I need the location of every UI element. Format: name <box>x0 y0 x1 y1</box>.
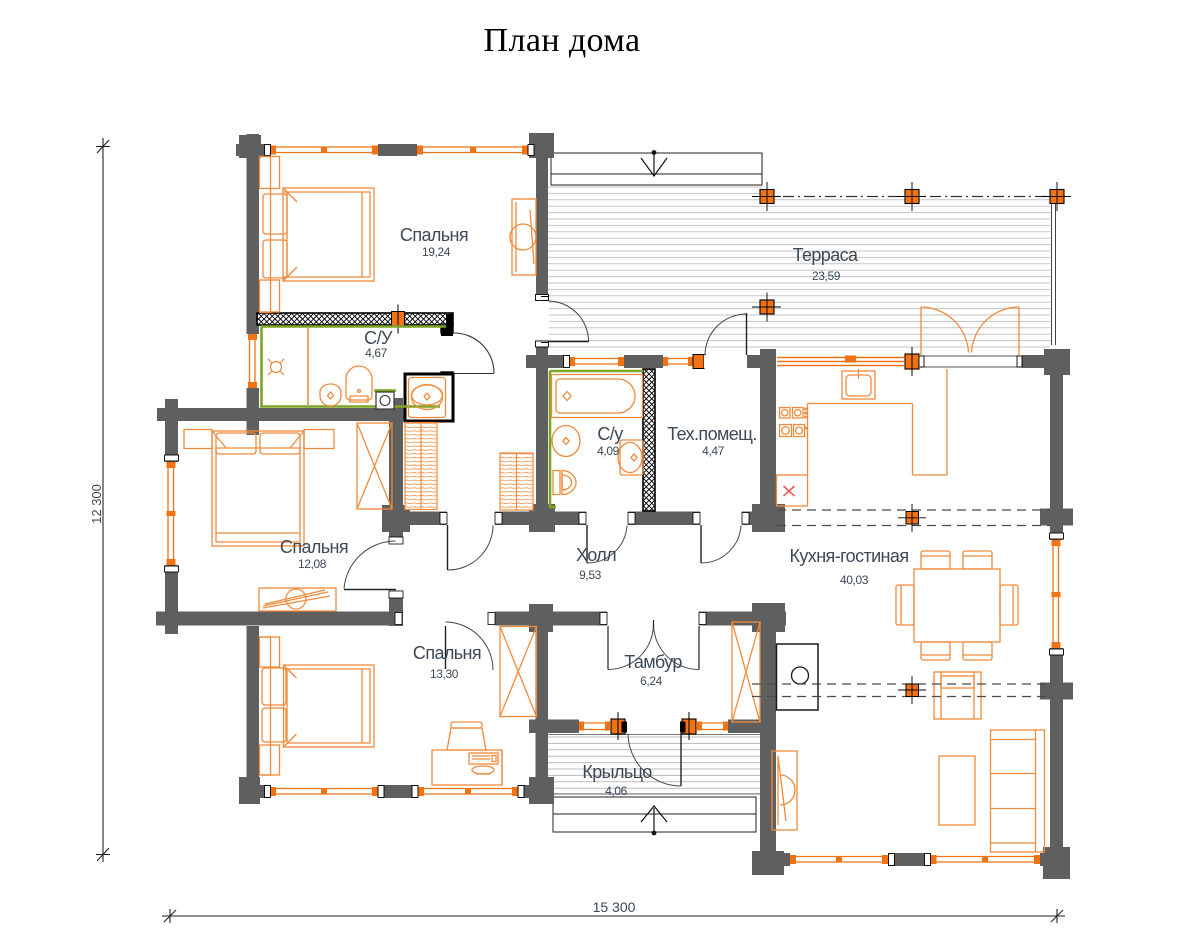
svg-text:13,30: 13,30 <box>430 667 459 681</box>
svg-text:Спальня: Спальня <box>413 643 481 663</box>
svg-text:План дома: План дома <box>484 22 641 59</box>
svg-text:9,53: 9,53 <box>579 568 601 582</box>
svg-text:15 300: 15 300 <box>593 899 636 915</box>
svg-text:4,09: 4,09 <box>597 444 619 458</box>
svg-text:40,03: 40,03 <box>840 573 869 587</box>
svg-text:4,06: 4,06 <box>605 784 627 798</box>
svg-text:4,47: 4,47 <box>702 444 724 458</box>
svg-text:Крыльцо: Крыльцо <box>582 762 652 782</box>
svg-text:С/у: С/у <box>597 424 623 444</box>
svg-text:4,67: 4,67 <box>365 346 387 360</box>
svg-text:12,08: 12,08 <box>298 557 327 571</box>
svg-text:Спальня: Спальня <box>280 537 348 557</box>
svg-text:Тамбур: Тамбур <box>624 652 682 672</box>
svg-text:Тех.помещ.: Тех.помещ. <box>667 424 757 444</box>
svg-text:12 300: 12 300 <box>89 484 104 524</box>
svg-text:19,24: 19,24 <box>422 245 451 259</box>
svg-text:С/У: С/У <box>364 328 393 348</box>
svg-text:Кухня-гостиная: Кухня-гостиная <box>790 546 909 566</box>
svg-text:23,59: 23,59 <box>812 269 841 283</box>
svg-text:Терраса: Терраса <box>793 245 859 265</box>
svg-text:Холл: Холл <box>576 545 616 565</box>
svg-text:6,24: 6,24 <box>640 674 662 688</box>
svg-text:Спальня: Спальня <box>400 225 468 245</box>
